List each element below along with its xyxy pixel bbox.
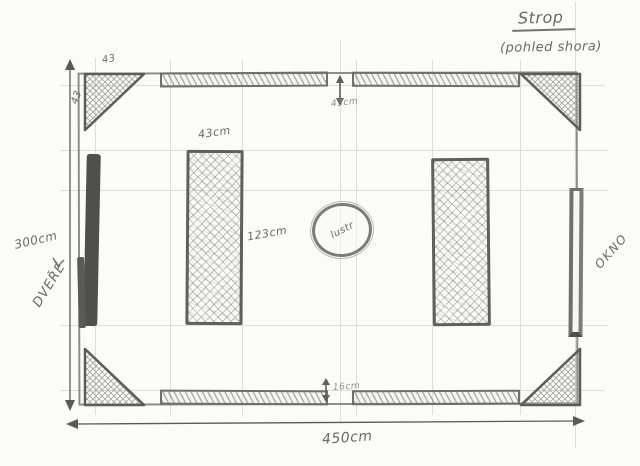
sketch-canvas: Strop (pohled shora) 43 43 43cm 16cm 43c…: [0, 0, 640, 466]
top-beam-left: [160, 72, 328, 88]
bottom-gap-label: 16cm: [333, 381, 361, 393]
page-title: Strop: [512, 7, 576, 32]
light-label: lustr: [328, 219, 355, 240]
right-column: [431, 158, 491, 327]
bottom-beam-right: [352, 390, 520, 406]
bottom-beam-left: [160, 390, 328, 406]
width-dimension-line: [64, 413, 586, 433]
corner-panel-bottom-right: [520, 348, 582, 407]
down-arrow-icon: [65, 400, 75, 411]
corner-panel-top-left: [84, 73, 146, 132]
corner-panel-bottom-left: [84, 348, 146, 407]
corner-panel-top-right: [520, 73, 582, 132]
left-column: [185, 150, 243, 325]
right-arrow-icon: [573, 416, 585, 426]
left-arrow-icon: [66, 419, 78, 429]
corner-top-dim-label: 43: [101, 53, 116, 66]
top-beam-right: [352, 72, 520, 88]
page-subtitle: (pohled shora): [500, 39, 602, 56]
up-arrow-icon: [65, 59, 75, 70]
width-dim-label: 450cm: [322, 428, 374, 447]
window-label: OKNO: [592, 231, 630, 271]
bottom-gap-arrow-icon: [318, 377, 334, 403]
height-dimension-line: [62, 58, 78, 412]
height-dim-label: 300cm: [13, 228, 59, 251]
window-bar: [568, 188, 583, 337]
